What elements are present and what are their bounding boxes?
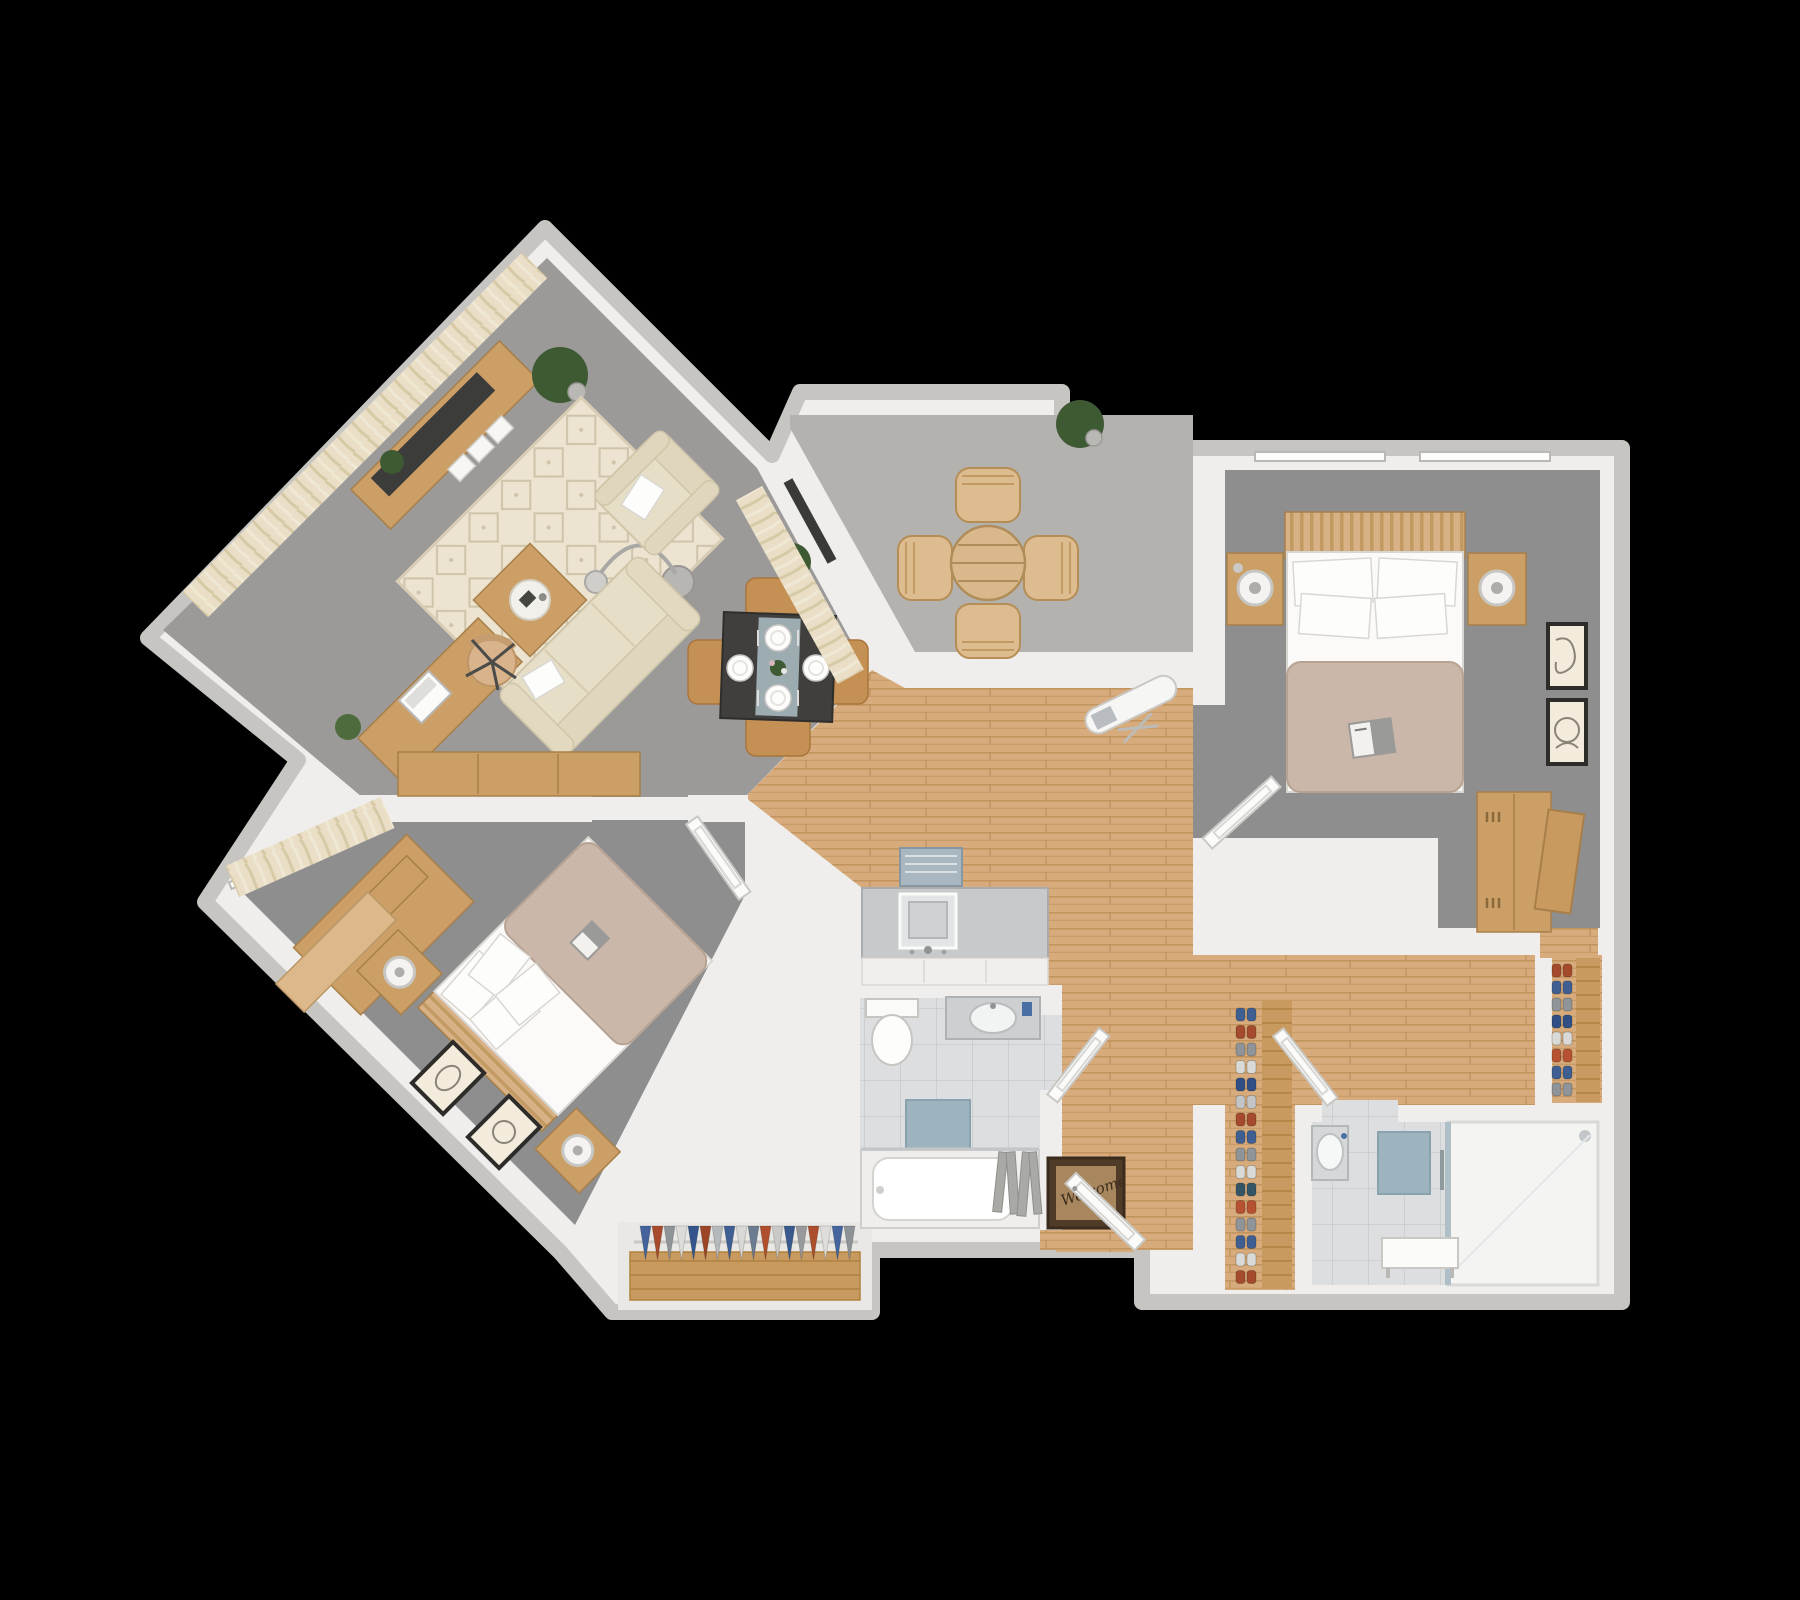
shoe-pair — [1563, 1049, 1572, 1062]
bed2-nightstand-left — [1227, 553, 1283, 625]
bathroom2-door-threshold — [1322, 1100, 1398, 1126]
shoe-pair — [1247, 1253, 1256, 1266]
bathtub — [861, 1149, 1042, 1228]
shoe-pair — [1563, 981, 1572, 994]
shoe-pair — [1236, 1078, 1245, 1091]
bed2-nightstand-right — [1468, 553, 1526, 625]
shoe-pair — [1247, 1183, 1256, 1196]
shoe-pair — [1236, 1131, 1245, 1144]
shoe-pair — [1236, 1113, 1245, 1126]
shoe-pair — [1236, 1166, 1245, 1179]
shoe-pair — [1236, 1218, 1245, 1231]
shoe-pair — [1247, 1043, 1256, 1056]
shoe-pair — [1236, 1096, 1245, 1109]
shoe-pair — [1563, 998, 1572, 1011]
shoe-pair — [1236, 1271, 1245, 1284]
kitchen-mat — [900, 848, 962, 886]
shoe-pair — [1247, 1096, 1256, 1109]
shoe-pair — [1563, 1015, 1572, 1028]
floor-plan-render: Welcome — [0, 0, 1800, 1600]
shoe-pair — [1563, 1083, 1572, 1096]
vanity1 — [946, 997, 1040, 1039]
shoe-pair — [1247, 1113, 1256, 1126]
bedroom2-bed — [1285, 512, 1465, 792]
desk-plant-icon — [335, 714, 361, 740]
bed2-book — [1348, 717, 1397, 759]
bathroom1-east-wall-a — [1040, 985, 1062, 1015]
shoe-pair — [1247, 1078, 1256, 1091]
shoe-pair — [1247, 1218, 1256, 1231]
bathroom1-mat — [906, 1100, 970, 1152]
shoe-pair — [1236, 1253, 1245, 1266]
shoe-pair — [1247, 1166, 1256, 1179]
shoe-pair — [1552, 1015, 1561, 1028]
shoe-pair — [1236, 1043, 1245, 1056]
shoe-pair — [1552, 1032, 1561, 1045]
shoe-pair — [1236, 1148, 1245, 1161]
console-plant-icon — [380, 450, 404, 474]
shoe-pair — [1236, 1183, 1245, 1196]
bedroom2-door-threshold — [1193, 705, 1225, 838]
bathroom2-mat — [1378, 1132, 1430, 1194]
shoe-pair — [1563, 1066, 1572, 1079]
bathroom2-sink — [1312, 1126, 1348, 1180]
shoe-pair — [1247, 1148, 1256, 1161]
sideboard — [398, 752, 640, 796]
shoe-pair — [1552, 1066, 1561, 1079]
kitchen-cabinet-face — [862, 958, 1048, 985]
shoe-pair — [1552, 1049, 1561, 1062]
shoe-pair — [1247, 1271, 1256, 1284]
living-bedroom1-wall — [357, 795, 592, 822]
shoe-pair — [1563, 964, 1572, 977]
shoe-pair — [1236, 1026, 1245, 1039]
shoe-pair — [1552, 1083, 1561, 1096]
shower-floor — [1448, 1122, 1598, 1285]
shoe-pair — [1236, 1061, 1245, 1074]
faucet-icon — [924, 946, 932, 954]
shoe-pair — [1552, 981, 1561, 994]
kitchen-sink — [900, 894, 956, 955]
shoe-pair — [1563, 1032, 1572, 1045]
shoe-pair — [1247, 1236, 1256, 1249]
shoe-pair — [1247, 1131, 1256, 1144]
shoe-pair — [1247, 1026, 1256, 1039]
shoe-pair — [1247, 1201, 1256, 1214]
shoe-pair — [1247, 1008, 1256, 1021]
shoe-pair — [1236, 1008, 1245, 1021]
shoe-pair — [1236, 1236, 1245, 1249]
shoe-pair — [1552, 964, 1561, 977]
soap-bottle — [1022, 1002, 1032, 1016]
bedroom2-window-1 — [1255, 452, 1385, 461]
shoe-pair — [1236, 1201, 1245, 1214]
bedroom2-wardrobe — [1477, 792, 1551, 932]
closet-b-panel — [1576, 958, 1600, 1102]
shoe-pair — [1552, 998, 1561, 1011]
shoe-pair — [1247, 1061, 1256, 1074]
bedroom2-window-2 — [1420, 452, 1550, 461]
